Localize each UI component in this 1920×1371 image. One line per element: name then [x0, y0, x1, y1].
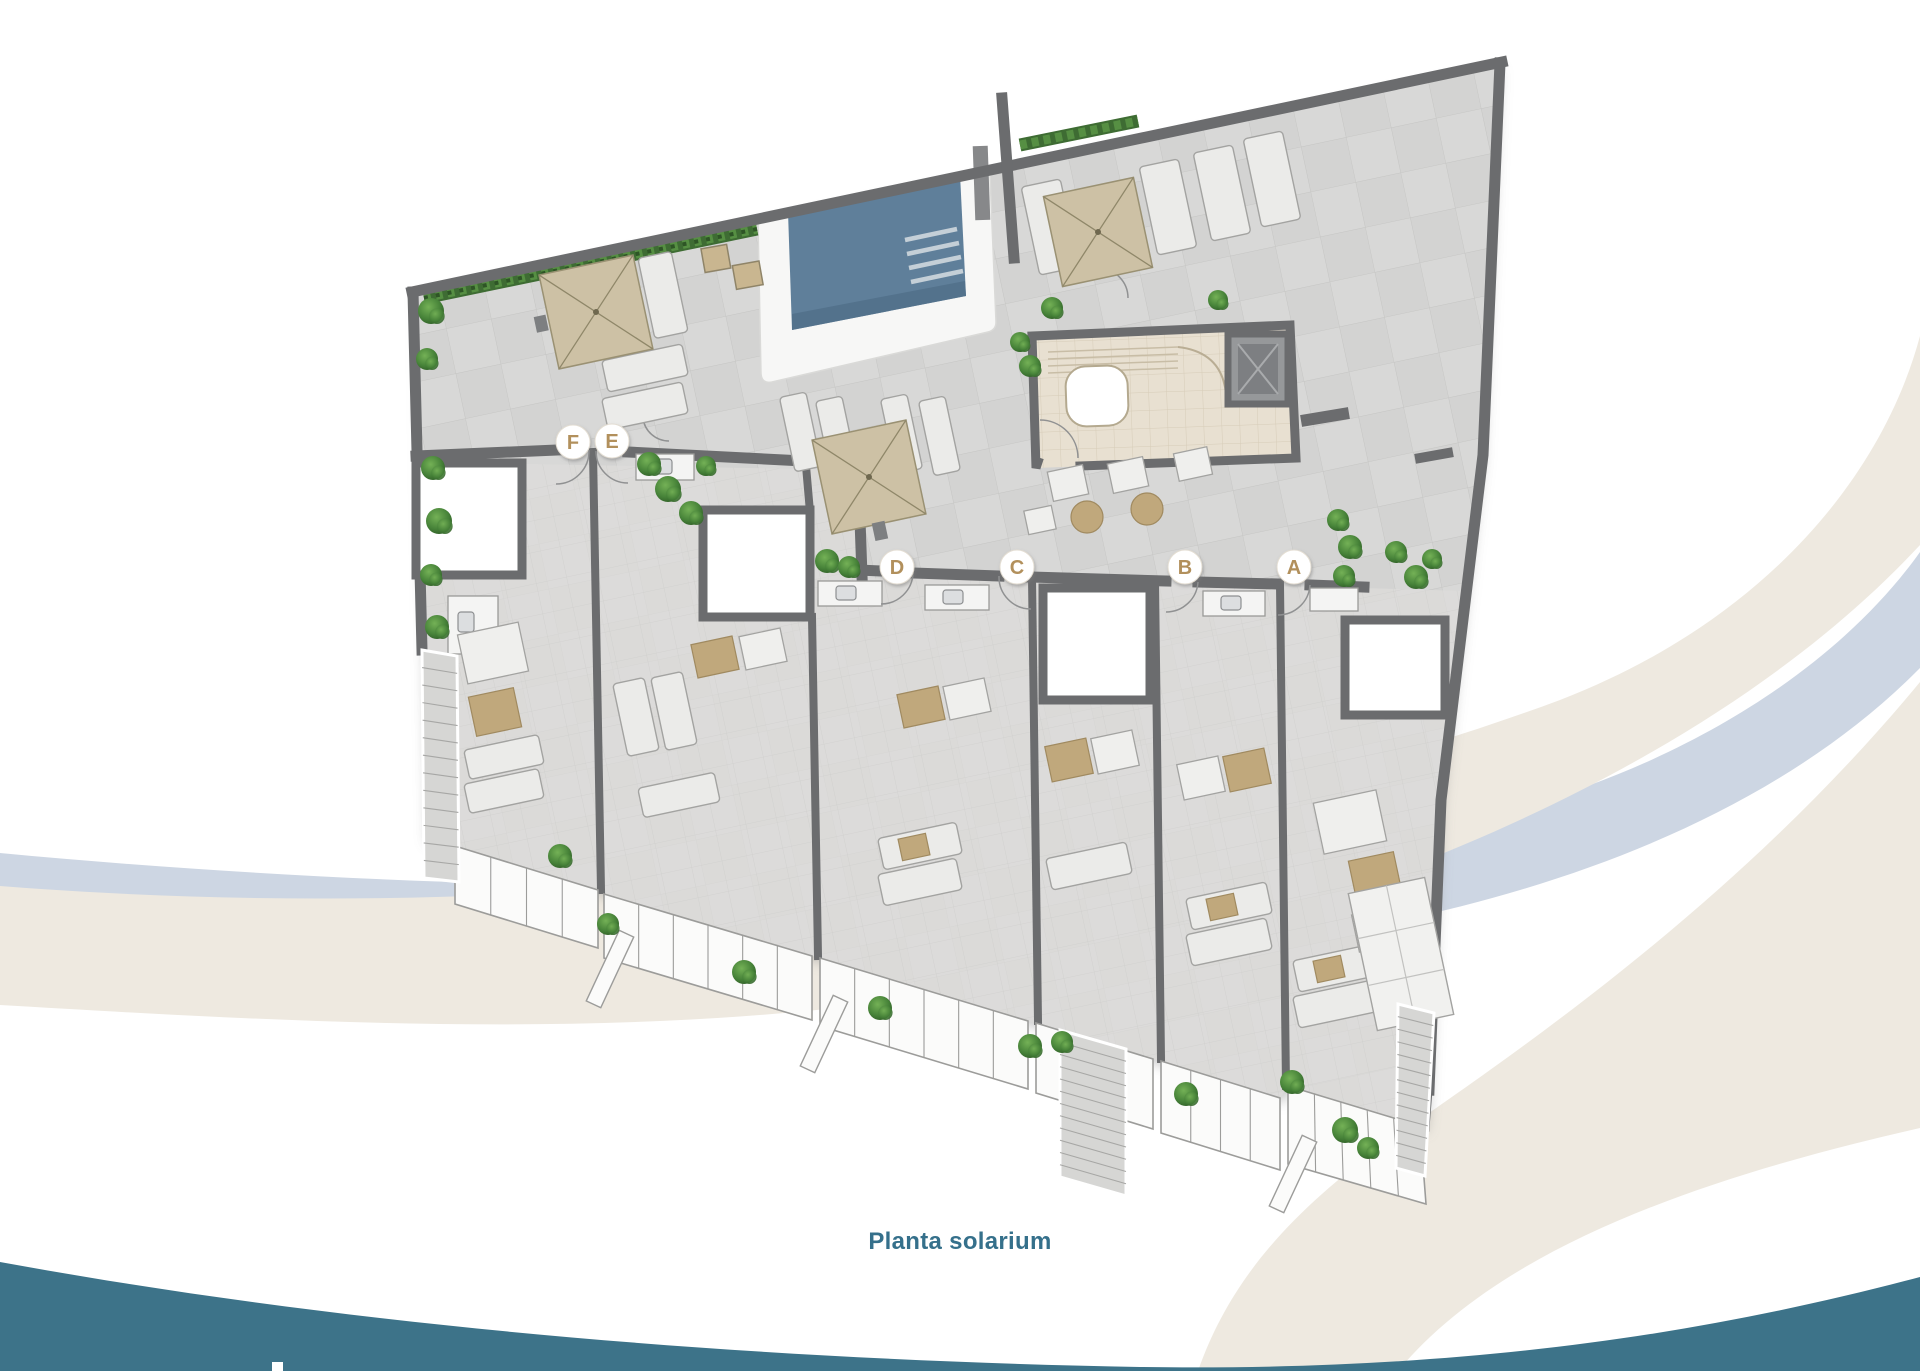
unit-label-letter: B — [1178, 557, 1192, 579]
unit-label-B: B — [1168, 550, 1202, 584]
page: FEDCBA Planta solarium — [0, 0, 1920, 1371]
floor-plan: FEDCBA — [380, 40, 1520, 1213]
wall-stub-1 — [1307, 414, 1343, 420]
pool-wall-stub — [973, 146, 991, 220]
wall-stub-2 — [1420, 453, 1448, 458]
stairs-middle — [1060, 1030, 1126, 1196]
shaft-unit-A — [1345, 620, 1445, 715]
plan-caption: Planta solarium — [868, 1228, 1051, 1255]
unit-label-D: D — [880, 550, 914, 584]
shaft-unit-C — [1043, 588, 1150, 700]
unit-label-F: F — [556, 425, 590, 459]
unit-label-E: E — [595, 424, 629, 458]
solarium-plan-graphic: FEDCBA Planta solarium — [0, 0, 1920, 1371]
bar-area — [1032, 325, 1296, 468]
footer-logo-fragment — [272, 1362, 283, 1371]
shaft-unit-E — [703, 510, 810, 617]
unit-label-letter: E — [605, 431, 618, 453]
unit-label-letter: D — [890, 557, 904, 579]
unit-label-C: C — [1000, 550, 1034, 584]
umbrella — [1043, 177, 1152, 286]
unit-label-letter: A — [1287, 557, 1301, 579]
unit-label-A: A — [1277, 550, 1311, 584]
elevator — [1228, 334, 1288, 404]
bar-sink — [1065, 365, 1129, 427]
stairs-left — [422, 650, 459, 882]
unit-label-letter: F — [567, 432, 579, 454]
unit-label-letter: C — [1010, 557, 1024, 579]
